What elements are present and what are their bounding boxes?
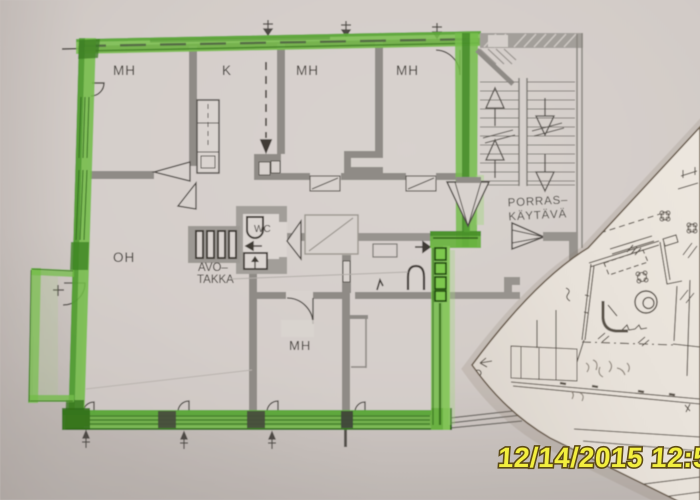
svg-text:MH: MH: [296, 63, 319, 78]
svg-text:K: K: [222, 63, 231, 78]
svg-text:AVO–: AVO–: [198, 262, 228, 274]
svg-text:WC: WC: [254, 224, 271, 235]
svg-text:MH: MH: [289, 338, 311, 353]
svg-text:TAKKA: TAKKA: [197, 274, 234, 286]
svg-text:12/14/2015 12:5: 12/14/2015 12:5: [497, 442, 700, 473]
svg-text:OH: OH: [113, 250, 135, 265]
svg-text:MH: MH: [396, 63, 419, 78]
svg-text:MH: MH: [113, 63, 136, 78]
